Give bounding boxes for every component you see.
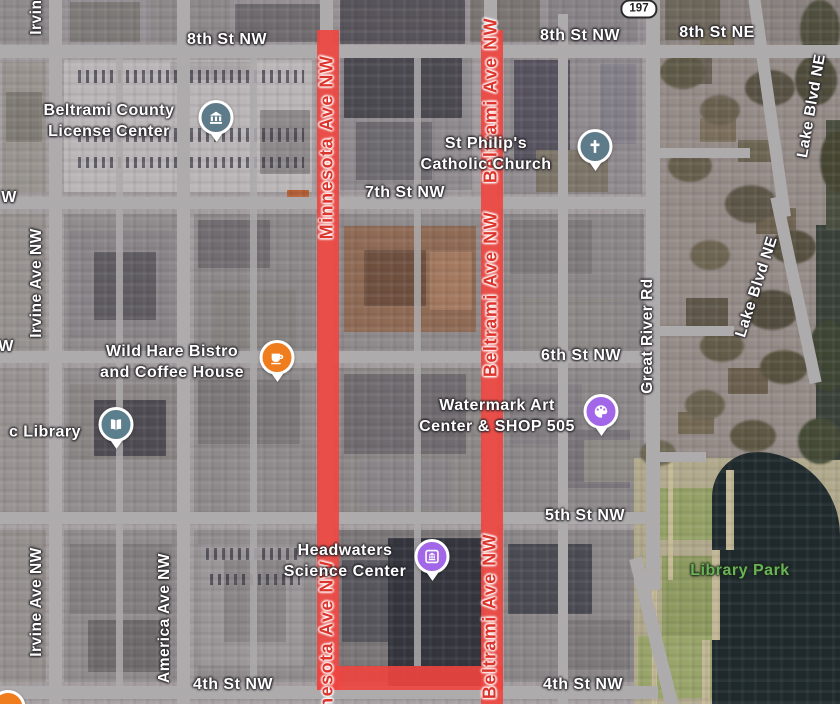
- poi-pin-tail: [109, 439, 123, 456]
- book-icon: [99, 407, 134, 442]
- poi-pin-tail: [588, 161, 602, 178]
- building-block: [70, 2, 140, 42]
- building-block: [6, 92, 42, 142]
- poi-label[interactable]: Wild Hare Bistroand Coffee House: [100, 341, 244, 383]
- map-canvas[interactable]: 8th St NW8th St NW8th St NE7th St NWW6th…: [0, 0, 840, 704]
- shore-path: [726, 470, 734, 550]
- poi-label[interactable]: c Library: [9, 422, 81, 443]
- poi-label[interactable]: St Philip'sCatholic Church: [420, 133, 551, 175]
- tree-canopy: [730, 420, 776, 452]
- street-label: W: [0, 338, 14, 356]
- poi-label[interactable]: Watermark ArtCenter & SHOP 505: [419, 395, 575, 437]
- street-label: 6th St NW: [541, 347, 621, 365]
- route-street-label: Minnesota Ave NW: [317, 55, 338, 240]
- street-label: 4th St NW: [543, 676, 623, 694]
- parking-cars: [78, 157, 304, 168]
- poi-pin-tail: [594, 426, 608, 443]
- bank-icon: [199, 100, 234, 135]
- poi-label[interactable]: HeadwatersScience Center: [284, 540, 407, 582]
- street-label: 8th St NW: [187, 31, 267, 49]
- tree-canopy: [725, 185, 777, 223]
- street-label: 7th St NW: [365, 184, 445, 202]
- parking-cars: [78, 70, 304, 83]
- building-block: [340, 0, 465, 44]
- building-block: [510, 220, 592, 274]
- poi-pin[interactable]: [260, 340, 295, 389]
- coffee-icon: [260, 340, 295, 375]
- poi-label-line: Headwaters: [284, 540, 407, 561]
- route-street-label: Beltrami Ave NW: [481, 211, 502, 377]
- building-block: [228, 454, 300, 510]
- building-block: [198, 380, 300, 444]
- road: [0, 45, 840, 58]
- building-block: [508, 544, 592, 614]
- building-block: [360, 460, 452, 510]
- poi-label-line: c Library: [9, 422, 81, 443]
- poi-pin[interactable]: [199, 100, 234, 149]
- poi-pin-tail: [270, 372, 284, 389]
- street-label: Irvine Ave NW: [28, 228, 46, 338]
- shore-path: [668, 462, 673, 580]
- palette-icon: [584, 394, 619, 429]
- poi-label-line: Beltrami County: [43, 100, 174, 121]
- street-label: Irvine Ave NW: [28, 547, 46, 657]
- poi-label-line: Center & SHOP 505: [419, 416, 575, 437]
- poi-label-line: Catholic Church: [420, 154, 551, 175]
- church-icon: [578, 129, 613, 164]
- street-label: Irvine Ave NW: [28, 0, 46, 35]
- poi-pin[interactable]: [0, 690, 26, 704]
- alley-road: [250, 58, 257, 688]
- poi-label-line: License Center: [43, 121, 174, 142]
- park-label[interactable]: Library Park: [690, 562, 789, 580]
- poi-label-line: St Philip's: [420, 133, 551, 154]
- poi-label-line: Science Center: [284, 561, 407, 582]
- route-shield-197: 197: [620, 0, 657, 19]
- poi-pin-tail: [425, 571, 439, 588]
- tree-canopy: [685, 390, 725, 420]
- building-block: [430, 252, 472, 310]
- street-label: 8th St NW: [540, 27, 620, 45]
- building-block: [520, 298, 622, 348]
- poi-pin[interactable]: [584, 394, 619, 443]
- building-block: [686, 298, 728, 326]
- street-label: W: [1, 189, 17, 207]
- tree-canopy: [690, 240, 730, 270]
- poi-pin[interactable]: [578, 129, 613, 178]
- tree-canopy: [760, 350, 808, 384]
- tree-canopy: [660, 55, 706, 89]
- poi-label-line: Watermark Art: [419, 395, 575, 416]
- tree-canopy: [798, 418, 840, 464]
- building-block: [94, 252, 156, 320]
- poi-pin-tail: [209, 132, 223, 149]
- building-block: [584, 440, 640, 482]
- street-label: America Ave NW: [156, 553, 174, 683]
- poi-pin[interactable]: [415, 539, 450, 588]
- building-block: [344, 58, 462, 118]
- building-block: [198, 220, 270, 268]
- poi-label[interactable]: Beltrami CountyLicense Center: [43, 100, 174, 142]
- poi-pin-head: [0, 690, 26, 704]
- street-label: Great River Rd: [639, 278, 657, 394]
- street-label: 4th St NW: [193, 676, 273, 694]
- street-label: 5th St NW: [545, 507, 625, 525]
- route-street-label: Beltrami Ave NW: [480, 533, 501, 699]
- shore-path: [702, 640, 710, 704]
- road: [646, 148, 750, 158]
- street-label: 8th St NE: [679, 24, 755, 42]
- route-overlay-segment: [317, 666, 503, 690]
- building-block: [558, 620, 630, 670]
- poi-label-line: Wild Hare Bistro: [100, 341, 244, 362]
- museum-icon: [415, 539, 450, 574]
- tree-canopy: [700, 95, 740, 125]
- poi-pin[interactable]: [99, 407, 134, 456]
- poi-label-line: and Coffee House: [100, 362, 244, 383]
